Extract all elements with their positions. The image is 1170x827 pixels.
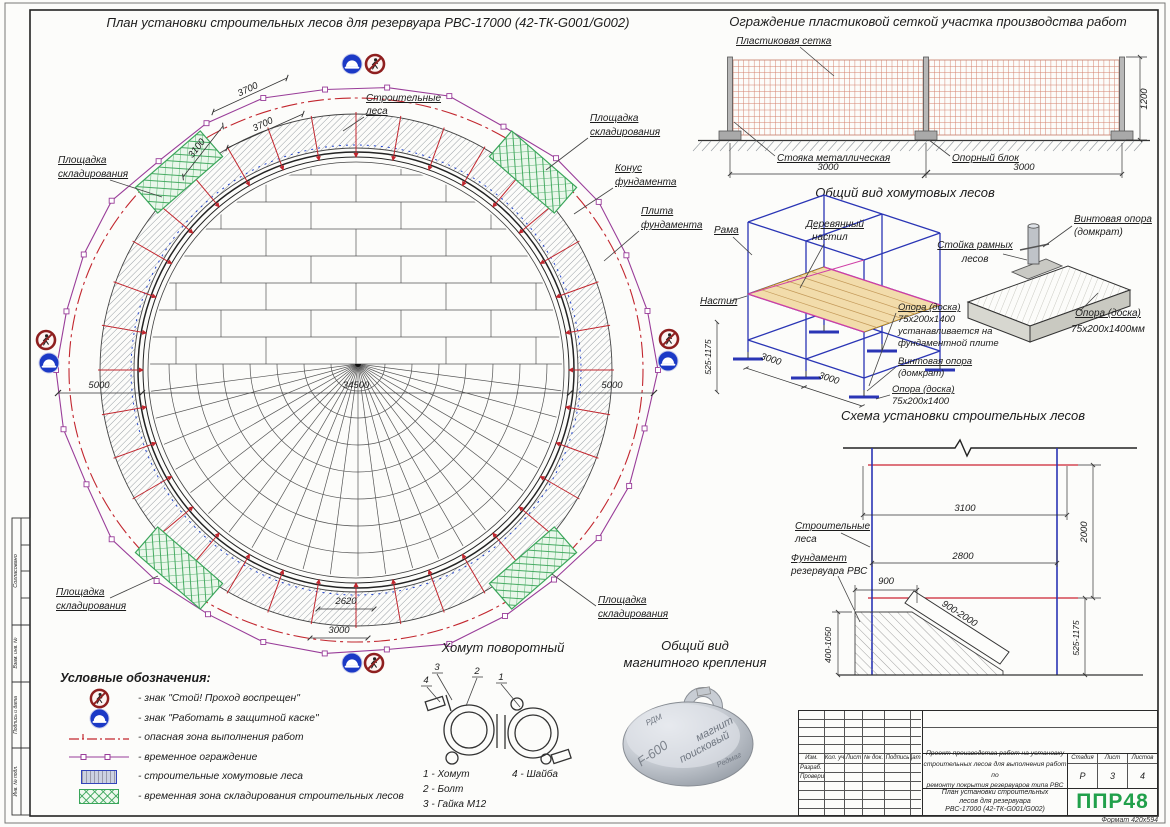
jd-stand-1: Стойка рамных xyxy=(937,240,1013,251)
legend-row: - знак "Стой! Проход воспрещен" xyxy=(60,689,430,709)
label-slab-1: Плита xyxy=(641,206,674,217)
col-sign: Подпись xyxy=(885,754,911,764)
legend-row: - строительные хомутовые леса xyxy=(60,767,430,787)
scaffold-isometric: Общий вид хомутовых лесов Рама Деревянны… xyxy=(700,185,999,407)
label-note-1: Опора (доска) xyxy=(898,302,961,313)
label-storage-sw-2: складирования xyxy=(56,601,127,612)
label-storage-nw-2: складирования xyxy=(58,169,129,180)
label-foundation-1: Фундамент xyxy=(791,553,847,564)
title-block: Изм. Кол. уч Лист № док. Подпись Дата Ра… xyxy=(798,710,1158,816)
label-board-1: Опора (доска) xyxy=(892,384,955,395)
magnet-title-1: Общий вид xyxy=(661,638,729,653)
margin-field-soglasovano: Согласовано xyxy=(13,554,19,588)
jd-jack-2: (домкрат) xyxy=(1074,227,1123,238)
tank-wall-line xyxy=(843,440,1137,456)
title-block-main: Проект производства работ на установку с… xyxy=(923,711,1157,815)
label-jack-2: (домкрат) xyxy=(898,368,944,379)
label-storage-ne-2: складирования xyxy=(590,127,661,138)
label-storage-ne-1: Площадка xyxy=(590,113,639,124)
sheet-value: 3 xyxy=(1098,764,1128,788)
dim-scheme-2000: 2000 xyxy=(1079,521,1090,544)
magnet-title-2: магнитного крепления xyxy=(624,655,767,670)
dim-iso-height: 525-1175 xyxy=(703,339,713,375)
dim-3000-plan: 3000 xyxy=(328,625,350,636)
fence-title: Ограждение пластиковой сеткой участка пр… xyxy=(729,14,1127,29)
dim-fence-span1: 3000 xyxy=(817,162,839,173)
jd-jack-1: Винтовая опора xyxy=(1074,214,1152,225)
legend-title: Условные обозначения: xyxy=(60,671,430,685)
doc-title-line: План установки строительных xyxy=(942,789,1048,798)
col-date: Дата xyxy=(911,754,921,764)
label-note-4: фундаментной плите xyxy=(898,338,999,349)
dim-scheme-900: 900 xyxy=(878,576,895,587)
dim-bay2: 3000 xyxy=(817,370,841,387)
tank-shell-inner xyxy=(143,157,569,583)
label-scheme-scaffold-2: леса xyxy=(794,534,817,545)
project-description: Проект производства работ на установку с… xyxy=(923,754,1067,789)
dim-fence-height: 1200 xyxy=(1139,88,1150,110)
dim-525-1175: 525-1175 xyxy=(1071,620,1081,656)
label-storage-nw-1: Площадка xyxy=(58,155,107,166)
col-doc: № док. xyxy=(863,754,885,764)
col-kol: Кол. уч xyxy=(825,754,845,764)
sheets-header: Листов xyxy=(1128,754,1157,764)
doc-title-line: РВС-17000 (42-ТК-G001/G002) xyxy=(945,806,1045,815)
label-scaffold-1: Строительные xyxy=(366,93,441,104)
label-storage-se-2: складирования xyxy=(598,609,669,620)
drawing-sheet: Согласовано Взам. инв. № Подпись и дата … xyxy=(0,0,1170,827)
document-title: План установки строительных лесов для ре… xyxy=(923,789,1067,815)
doc-number-cell xyxy=(923,711,1157,754)
label-note-3: устанавливается на xyxy=(897,326,992,337)
fence-posts xyxy=(719,57,1133,140)
installation-scheme: Схема установки строительных лесов 3100 … xyxy=(790,408,1143,675)
legend-row: - опасная зона выполнения работ xyxy=(60,728,430,748)
row-checked: Проверил xyxy=(799,773,825,782)
label-deck-side: Настил xyxy=(700,296,738,307)
label-board-2: 75х200х1400 xyxy=(892,396,950,407)
revision-table: Изм. Кол. уч Лист № док. Подпись Дата Ра… xyxy=(799,711,923,815)
label-storage-sw-1: Площадка xyxy=(56,587,105,598)
legend-row: - временное ограждение xyxy=(60,748,430,768)
label-scaffold-2: леса xyxy=(365,106,388,117)
dim-34500: 34500 xyxy=(343,380,370,391)
dim-5000-right: 5000 xyxy=(601,380,623,391)
dim-400-1050: 400-1050 xyxy=(823,627,833,663)
jd-stand-2: лесов xyxy=(961,254,989,265)
col-izm: Изм. xyxy=(799,754,825,764)
plan-title: План установки строительных лесов для ре… xyxy=(107,15,630,30)
jd-board-2: 75х200х1400мм xyxy=(1071,324,1145,335)
legend-item-label: - строительные хомутовые леса xyxy=(138,771,303,782)
dim-2620: 2620 xyxy=(334,596,357,607)
col-list: Лист xyxy=(845,754,863,764)
jack-detail: Винтовая опора (домкрат) Стойка рамных л… xyxy=(937,214,1152,342)
label-scheme-scaffold-1: Строительные xyxy=(795,521,870,532)
temporary-fence-line-icon xyxy=(60,751,138,763)
label-cone-2: фундамента xyxy=(615,176,677,188)
part-3: 3 - Гайка М12 xyxy=(423,799,487,810)
jd-board-1: Опора (доска) xyxy=(1075,308,1141,319)
iso-dim-lines xyxy=(717,322,862,406)
legend-row: - знак "Работать в защитной каске" xyxy=(60,709,430,729)
cone-edge-circle xyxy=(134,148,578,592)
magnet-view: Общий вид магнитного крепления РДМ магни… xyxy=(623,638,767,786)
label-foundation-2: резервуара РВС xyxy=(790,566,868,577)
label-mesh: Пластиковая сетка xyxy=(736,36,832,47)
fence-elevation: Ограждение пластиковой сеткой участка пр… xyxy=(693,14,1150,178)
dim-bay1: 3000 xyxy=(759,351,783,368)
magnet-photo: РДМ магнит поисковый F-600 Редмаг xyxy=(623,687,753,786)
label-deck-1: Деревянный xyxy=(805,219,864,230)
doc-title-line: лесов для резервуара xyxy=(959,798,1031,807)
legend-item-label: - временное ограждение xyxy=(138,752,257,763)
helmet-sign-icon xyxy=(60,708,138,729)
dim-3700a: 3700 xyxy=(236,80,260,99)
label-storage-se-1: Площадка xyxy=(598,595,647,606)
ground-hatch xyxy=(693,141,1143,151)
scaffold-view-title: Общий вид хомутовых лесов xyxy=(815,185,995,200)
dim-scheme-2800: 2800 xyxy=(951,551,974,562)
dim-fence-span2: 3000 xyxy=(1013,162,1035,173)
stage-header: Стадия xyxy=(1068,754,1098,764)
sheet-header: Лист xyxy=(1098,754,1128,764)
legend-item-label: - знак "Стой! Проход воспрещен" xyxy=(138,693,300,704)
dim-scheme-3100: 3100 xyxy=(954,503,976,514)
format-note: Формат 420х594 xyxy=(1020,817,1158,824)
swivel-clamp: Хомут поворотный 3 4 2 1 1 - Хомут 2 - Б… xyxy=(421,640,571,810)
row-developed: Разраб. xyxy=(799,764,825,773)
roof-edge-circle xyxy=(148,162,564,578)
legend: Условные обозначения: - знак "Стой! Прох… xyxy=(60,671,430,806)
sheets-value: 4 xyxy=(1128,764,1157,788)
callout-2: 2 xyxy=(473,666,480,677)
legend-item-label: - опасная зона выполнения работ xyxy=(138,732,304,743)
label-cone-1: Конус xyxy=(615,163,642,174)
label-jack-1: Винтовая опора xyxy=(898,356,972,367)
label-slab-2: фундамента xyxy=(641,219,703,231)
danger-zone-line-icon xyxy=(60,732,138,744)
company-logo: ППР48 xyxy=(1068,789,1157,815)
tank-plan: План установки строительных лесов для ре… xyxy=(37,15,703,673)
legend-item-label: - знак "Работать в защитной каске" xyxy=(138,713,319,724)
clamp-title: Хомут поворотный xyxy=(441,640,565,655)
margin-field-podpis: Подпись и дата xyxy=(13,696,19,734)
clamp-scaffold-icon xyxy=(60,770,138,784)
margin-field-vzam: Взам. инв. № xyxy=(13,637,19,669)
margin-field-inv: Инв. № подл. xyxy=(13,765,19,796)
callout-3: 3 xyxy=(434,662,440,673)
label-block: Опорный блок xyxy=(952,152,1020,164)
no-pedestrian-sign-icon xyxy=(60,688,138,709)
project-line: Проект производства работ на установку xyxy=(926,749,1064,760)
scheme-leaders xyxy=(838,533,870,622)
legend-row: - временная зона складирования строитель… xyxy=(60,787,430,807)
clamp-drawing xyxy=(425,695,571,764)
label-deck-2: настил xyxy=(812,232,848,243)
project-line: строительных лесов для выполнения работ … xyxy=(923,760,1067,781)
label-note-2: 75х200х1400 xyxy=(898,314,956,325)
stage-value: Р xyxy=(1068,764,1098,788)
storage-zone-icon xyxy=(60,789,138,804)
callout-1: 1 xyxy=(498,672,503,683)
dim-5000-left: 5000 xyxy=(88,380,110,391)
scheme-title: Схема установки строительных лесов xyxy=(841,408,1085,423)
label-frame: Рама xyxy=(714,225,739,236)
tank-shell-outer xyxy=(138,152,574,588)
part-4: 4 - Шайба xyxy=(512,768,558,780)
legend-item-label: - временная зона складирования строитель… xyxy=(138,791,404,802)
